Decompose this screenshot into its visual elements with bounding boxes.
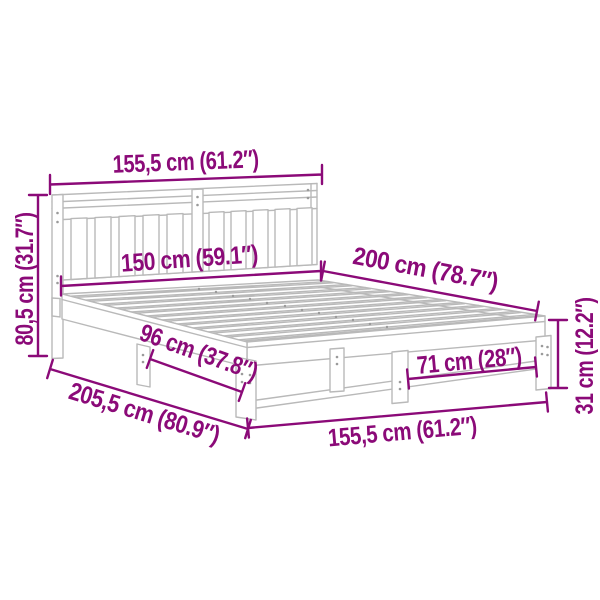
foot-far-leg: [536, 336, 551, 391]
dimension-headboard-height: 80,5 cm (31.7″): [11, 195, 47, 356]
dimension-frame-width-bottom-label: 155,5 cm (61.2″): [327, 412, 478, 453]
dimension-headboard-width: 155,5 cm (61.2″): [50, 145, 322, 194]
dimension-mattress-width-label: 150 cm (59.1″): [120, 240, 259, 277]
dimension-headboard-width-label: 155,5 cm (61.2″): [112, 145, 259, 179]
bed-frame-dimension-diagram: 155,5 cm (61.2″) 80,5 cm (31.7″) 150 cm …: [0, 0, 600, 600]
dimension-leg-height: 31 cm (12.2″): [549, 297, 599, 414]
far-middle-leg: [330, 348, 344, 392]
bed-frame-drawing: 155,5 cm (61.2″) 80,5 cm (31.7″) 150 cm …: [0, 0, 600, 600]
foot-middle-leg: [392, 351, 408, 404]
dimension-headboard-height-label: 80,5 cm (31.7″): [11, 212, 39, 345]
dimension-leg-height-label: 31 cm (12.2″): [571, 297, 599, 414]
